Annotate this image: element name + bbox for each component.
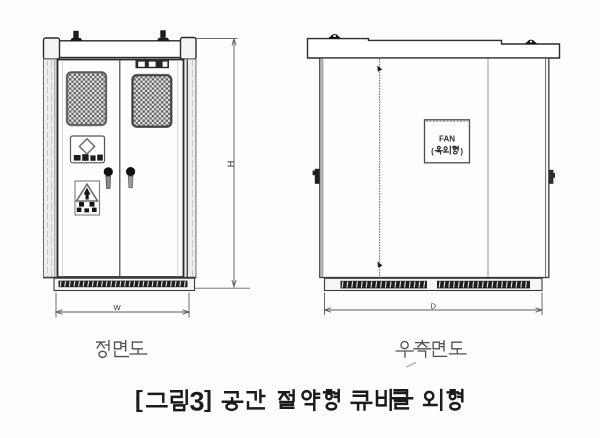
svg-text:FAN: FAN: [439, 135, 455, 144]
svg-text:): ): [460, 147, 463, 156]
svg-text:H: H: [226, 161, 236, 168]
svg-text:3: 3: [190, 386, 205, 416]
svg-text:(: (: [431, 147, 434, 156]
svg-text:[: [: [135, 386, 143, 412]
svg-text:D: D: [431, 302, 437, 311]
svg-text:W: W: [114, 303, 122, 312]
svg-text:]: ]: [204, 386, 212, 412]
